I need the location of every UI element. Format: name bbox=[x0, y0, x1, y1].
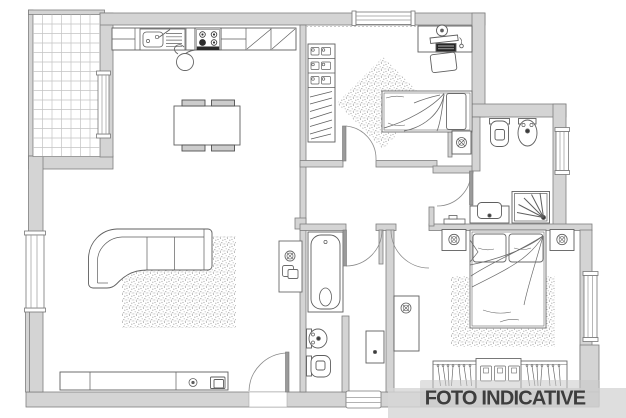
svg-text:FOTO INDICATIVE: FOTO INDICATIVE bbox=[425, 388, 586, 410]
